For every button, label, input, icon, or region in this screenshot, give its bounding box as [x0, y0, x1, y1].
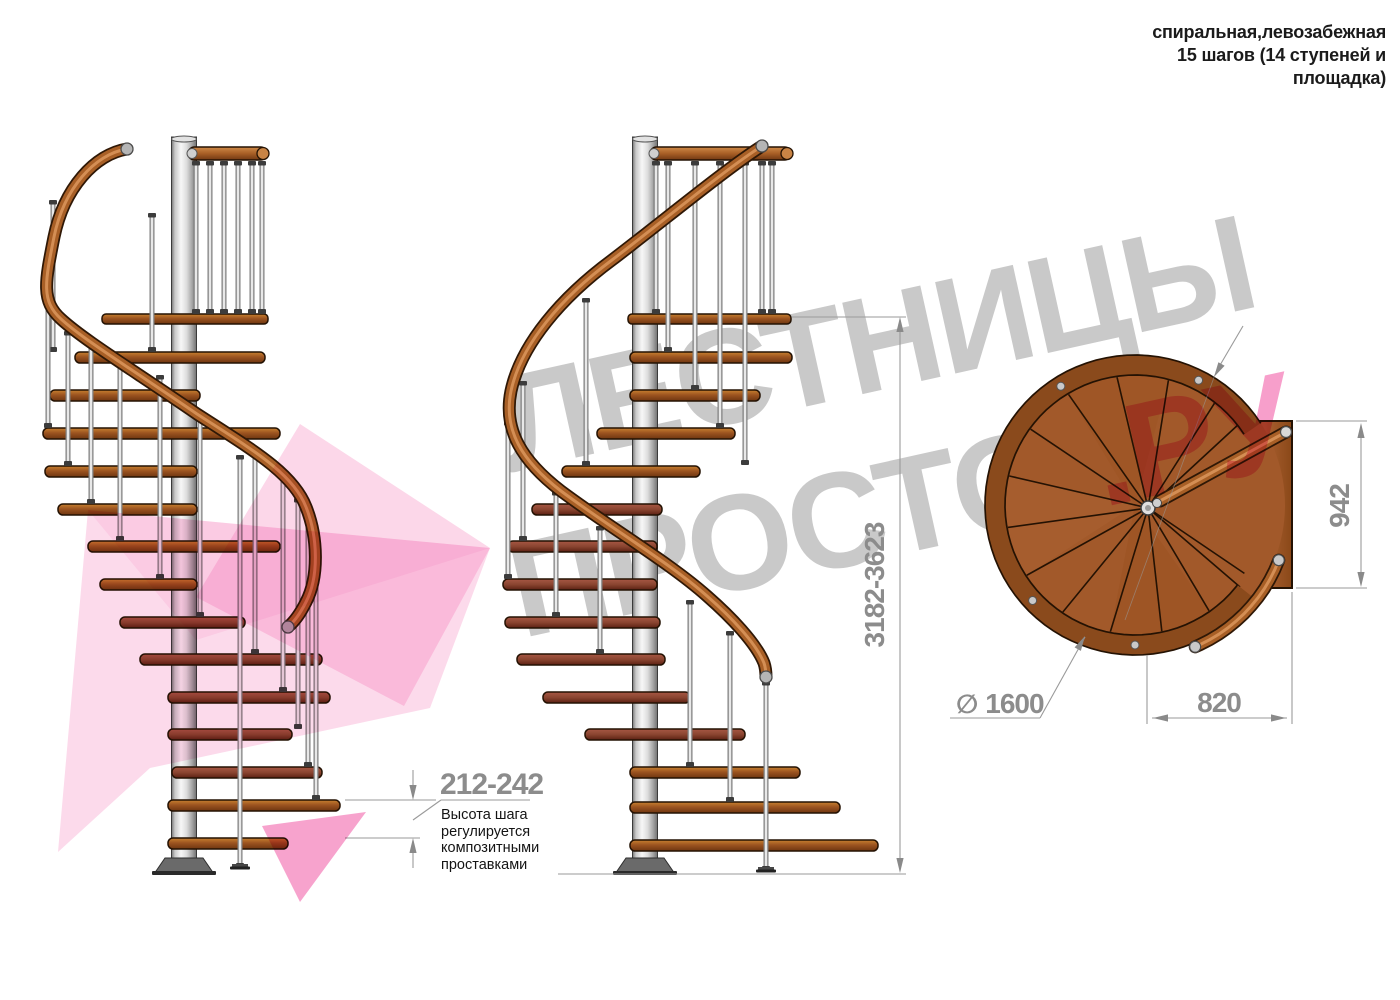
drawing-page: ЛЕСТНИЦЫ ПРОСТО — [0, 0, 1400, 1000]
step-height-dimension: 212-242 — [440, 770, 543, 800]
title-line-3: площадка) — [1152, 67, 1386, 90]
drawing-title: спиральная,левозабежная 15 шагов (14 сту… — [1152, 21, 1386, 90]
title-line-1: спиральная,левозабежная — [1152, 21, 1386, 44]
step-height-note: Высота шага регулируется композитными пр… — [441, 807, 539, 873]
title-line-2: 15 шагов (14 ступеней и — [1152, 44, 1386, 67]
